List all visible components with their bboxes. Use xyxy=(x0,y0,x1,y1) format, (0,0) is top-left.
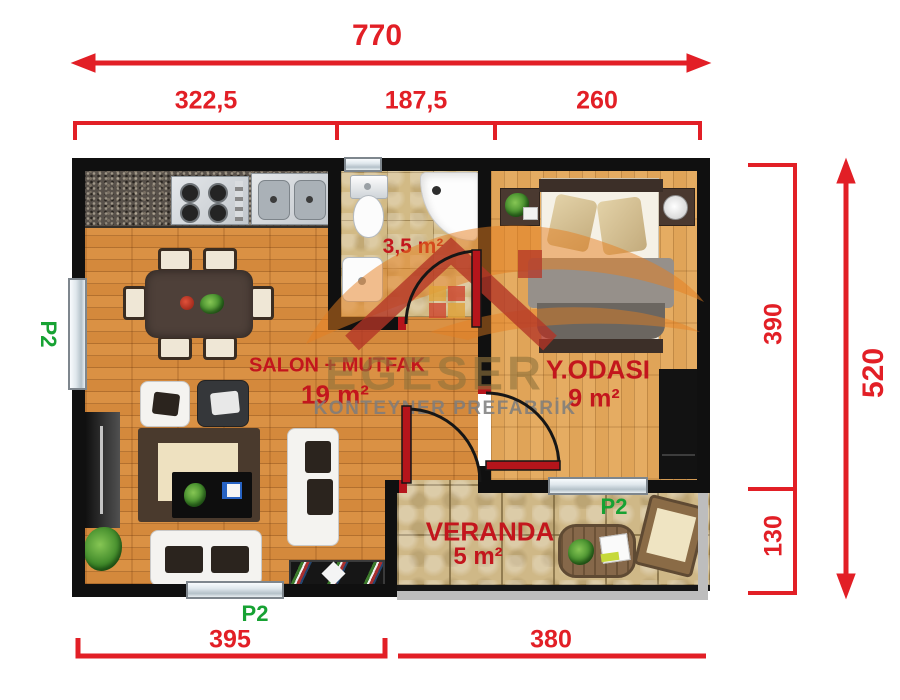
pillow xyxy=(596,196,647,256)
veranda-chair-cushion xyxy=(646,508,696,562)
kitchen-sink xyxy=(251,173,330,225)
armchair-cushion xyxy=(152,391,180,416)
sofa-cushion xyxy=(307,479,333,515)
nightstand-item xyxy=(523,207,538,220)
wall-right xyxy=(697,158,710,493)
wall-veranda-left xyxy=(385,480,397,597)
wardrobe xyxy=(659,369,698,479)
sink-drain xyxy=(306,196,313,203)
armchair-white xyxy=(140,381,190,427)
wall-bedroom-veranda-right xyxy=(648,480,710,493)
wall-top xyxy=(72,158,710,171)
striped-doormat xyxy=(289,560,385,587)
dim-arrowhead xyxy=(837,574,855,598)
burner xyxy=(180,183,200,203)
shower-drain xyxy=(432,186,441,195)
dim-bottom-seg-1: 395 xyxy=(209,626,251,655)
coffee-table-plant xyxy=(184,483,206,507)
dining-chair xyxy=(250,286,274,320)
armchair-cushion xyxy=(210,391,240,416)
veranda-table xyxy=(558,524,636,578)
dining-chair xyxy=(203,248,237,272)
sink-faucet xyxy=(358,277,366,285)
window-left-p2 xyxy=(68,278,87,390)
front-door-jamb xyxy=(399,480,407,493)
dim-top-seg-3: 260 xyxy=(576,87,618,116)
watermark-brand: EGESER xyxy=(325,346,545,401)
bathroom-door-jamb xyxy=(398,317,406,330)
dim-right-seg-1: 390 xyxy=(760,303,789,345)
pillow xyxy=(546,193,598,253)
wall-bedroom-left-lower xyxy=(478,466,491,493)
tv-screen-line xyxy=(100,426,103,514)
bathroom-sink xyxy=(342,257,383,302)
sink-drain xyxy=(270,196,277,203)
dim-arrowhead xyxy=(687,54,710,72)
bed xyxy=(541,178,659,353)
dim-right-seg-2: 130 xyxy=(760,515,789,557)
headboard xyxy=(539,179,663,192)
dim-bottom-seg-2: 380 xyxy=(530,626,572,655)
veranda-plant xyxy=(568,539,594,565)
dim-top-seg-2: 187,5 xyxy=(385,87,448,116)
bowl xyxy=(180,296,194,310)
wall-bathroom-left xyxy=(328,171,341,330)
p2-veranda-window-label: P2 xyxy=(601,494,628,520)
mat-diamond xyxy=(321,561,345,585)
bedside-lamp xyxy=(663,195,688,220)
bathroom-area: 3,5 m² xyxy=(383,235,444,259)
book xyxy=(222,482,242,499)
window-bottom-p2 xyxy=(186,581,284,599)
blanket-fold xyxy=(537,303,665,339)
burner xyxy=(180,203,200,223)
dining-chair xyxy=(158,336,192,360)
blanket xyxy=(528,258,674,308)
dining-chair xyxy=(158,248,192,272)
nightstand-right xyxy=(653,188,695,226)
armchair-dark xyxy=(197,380,249,427)
sofa-bottom xyxy=(150,530,262,586)
tv-unit xyxy=(83,412,120,528)
coffee-table xyxy=(172,472,252,518)
toilet-flush xyxy=(364,183,371,190)
table-plant xyxy=(200,294,224,314)
bedroom-label: Y.ODASI xyxy=(546,355,650,386)
toilet-bowl xyxy=(353,195,384,238)
wardrobe-line xyxy=(662,454,695,456)
veranda-step-right xyxy=(698,493,708,591)
toilet xyxy=(350,175,386,237)
p2-left-window-label: P2 xyxy=(35,321,61,348)
dim-top-seg-1: 322,5 xyxy=(175,87,238,116)
wall-bathroom-bottom xyxy=(328,317,406,330)
dining-chair xyxy=(123,286,147,320)
window-veranda-p2 xyxy=(548,477,648,495)
sofa-cushion xyxy=(305,441,331,473)
burner xyxy=(208,183,228,203)
floor-plan-canvas: EGESER KONTEYNER PREFABRİK SALON + MUTFA… xyxy=(0,0,900,700)
footboard xyxy=(539,339,663,353)
watermark-tagline: KONTEYNER PREFABRİK xyxy=(314,398,577,420)
p2-bottom-window-label: P2 xyxy=(242,601,269,627)
stove xyxy=(171,176,249,225)
veranda-step-bottom xyxy=(397,591,708,600)
sofa-right xyxy=(287,428,339,546)
burner xyxy=(208,203,228,223)
dim-arrowhead xyxy=(837,159,855,183)
dim-top-bracket xyxy=(75,123,700,140)
dining-chair xyxy=(203,336,237,360)
nightstand-left xyxy=(500,188,540,226)
sofa-cushion xyxy=(165,546,203,573)
stove-knobs xyxy=(235,181,243,221)
dim-arrowhead xyxy=(72,54,95,72)
window-bathroom-top xyxy=(344,157,382,172)
sofa-cushion xyxy=(211,546,249,573)
wall-bedroom-veranda-left xyxy=(491,480,548,493)
veranda-area: 5 m² xyxy=(453,543,502,571)
dim-top-total: 770 xyxy=(352,19,402,53)
book-pages xyxy=(227,484,240,497)
dining-table xyxy=(145,270,253,338)
dim-right-total: 520 xyxy=(857,348,891,398)
